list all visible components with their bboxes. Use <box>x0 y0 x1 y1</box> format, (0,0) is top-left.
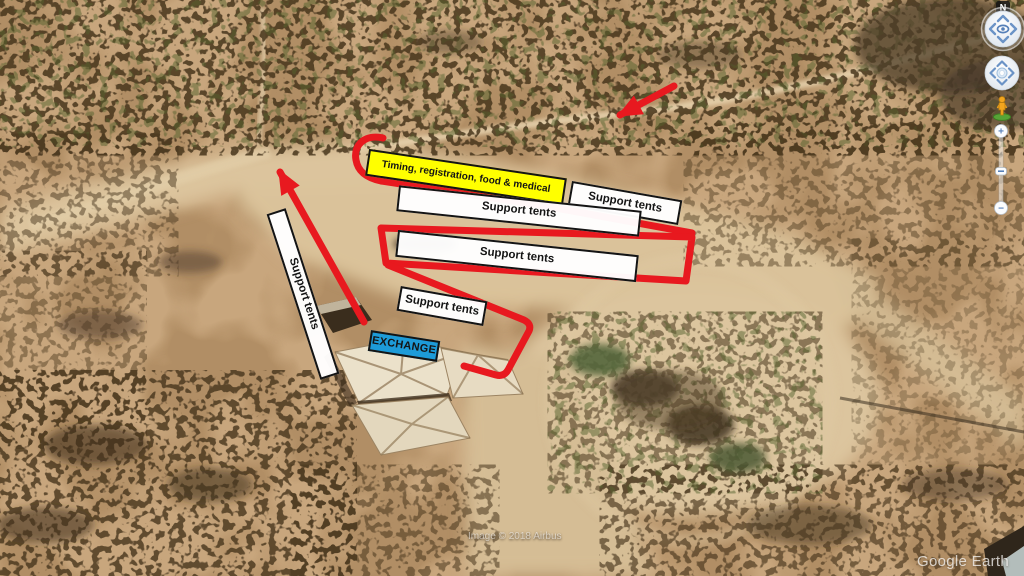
google-earth-watermark: Google Earth <box>917 553 1009 570</box>
zoom-slider: + − <box>995 125 1008 215</box>
look-joystick[interactable] <box>982 8 1024 51</box>
earth-nav-controls: N <box>980 0 1024 236</box>
move-joystick[interactable] <box>985 56 1019 90</box>
svg-text:−: − <box>998 203 1004 214</box>
svg-text:+: + <box>998 127 1004 138</box>
imagery-attribution: Image © 2018 Airbus <box>468 531 562 542</box>
satellite-map[interactable] <box>0 0 1024 576</box>
hand-icon <box>997 68 1007 78</box>
zoom-in-button[interactable]: + <box>995 125 1008 138</box>
zoom-out-button[interactable]: − <box>995 202 1008 215</box>
pegman-icon[interactable] <box>994 97 1011 121</box>
google-earth-viewport: Timing, registration, food & medical Sup… <box>0 0 1024 576</box>
zoom-slider-handle[interactable] <box>996 168 1007 176</box>
